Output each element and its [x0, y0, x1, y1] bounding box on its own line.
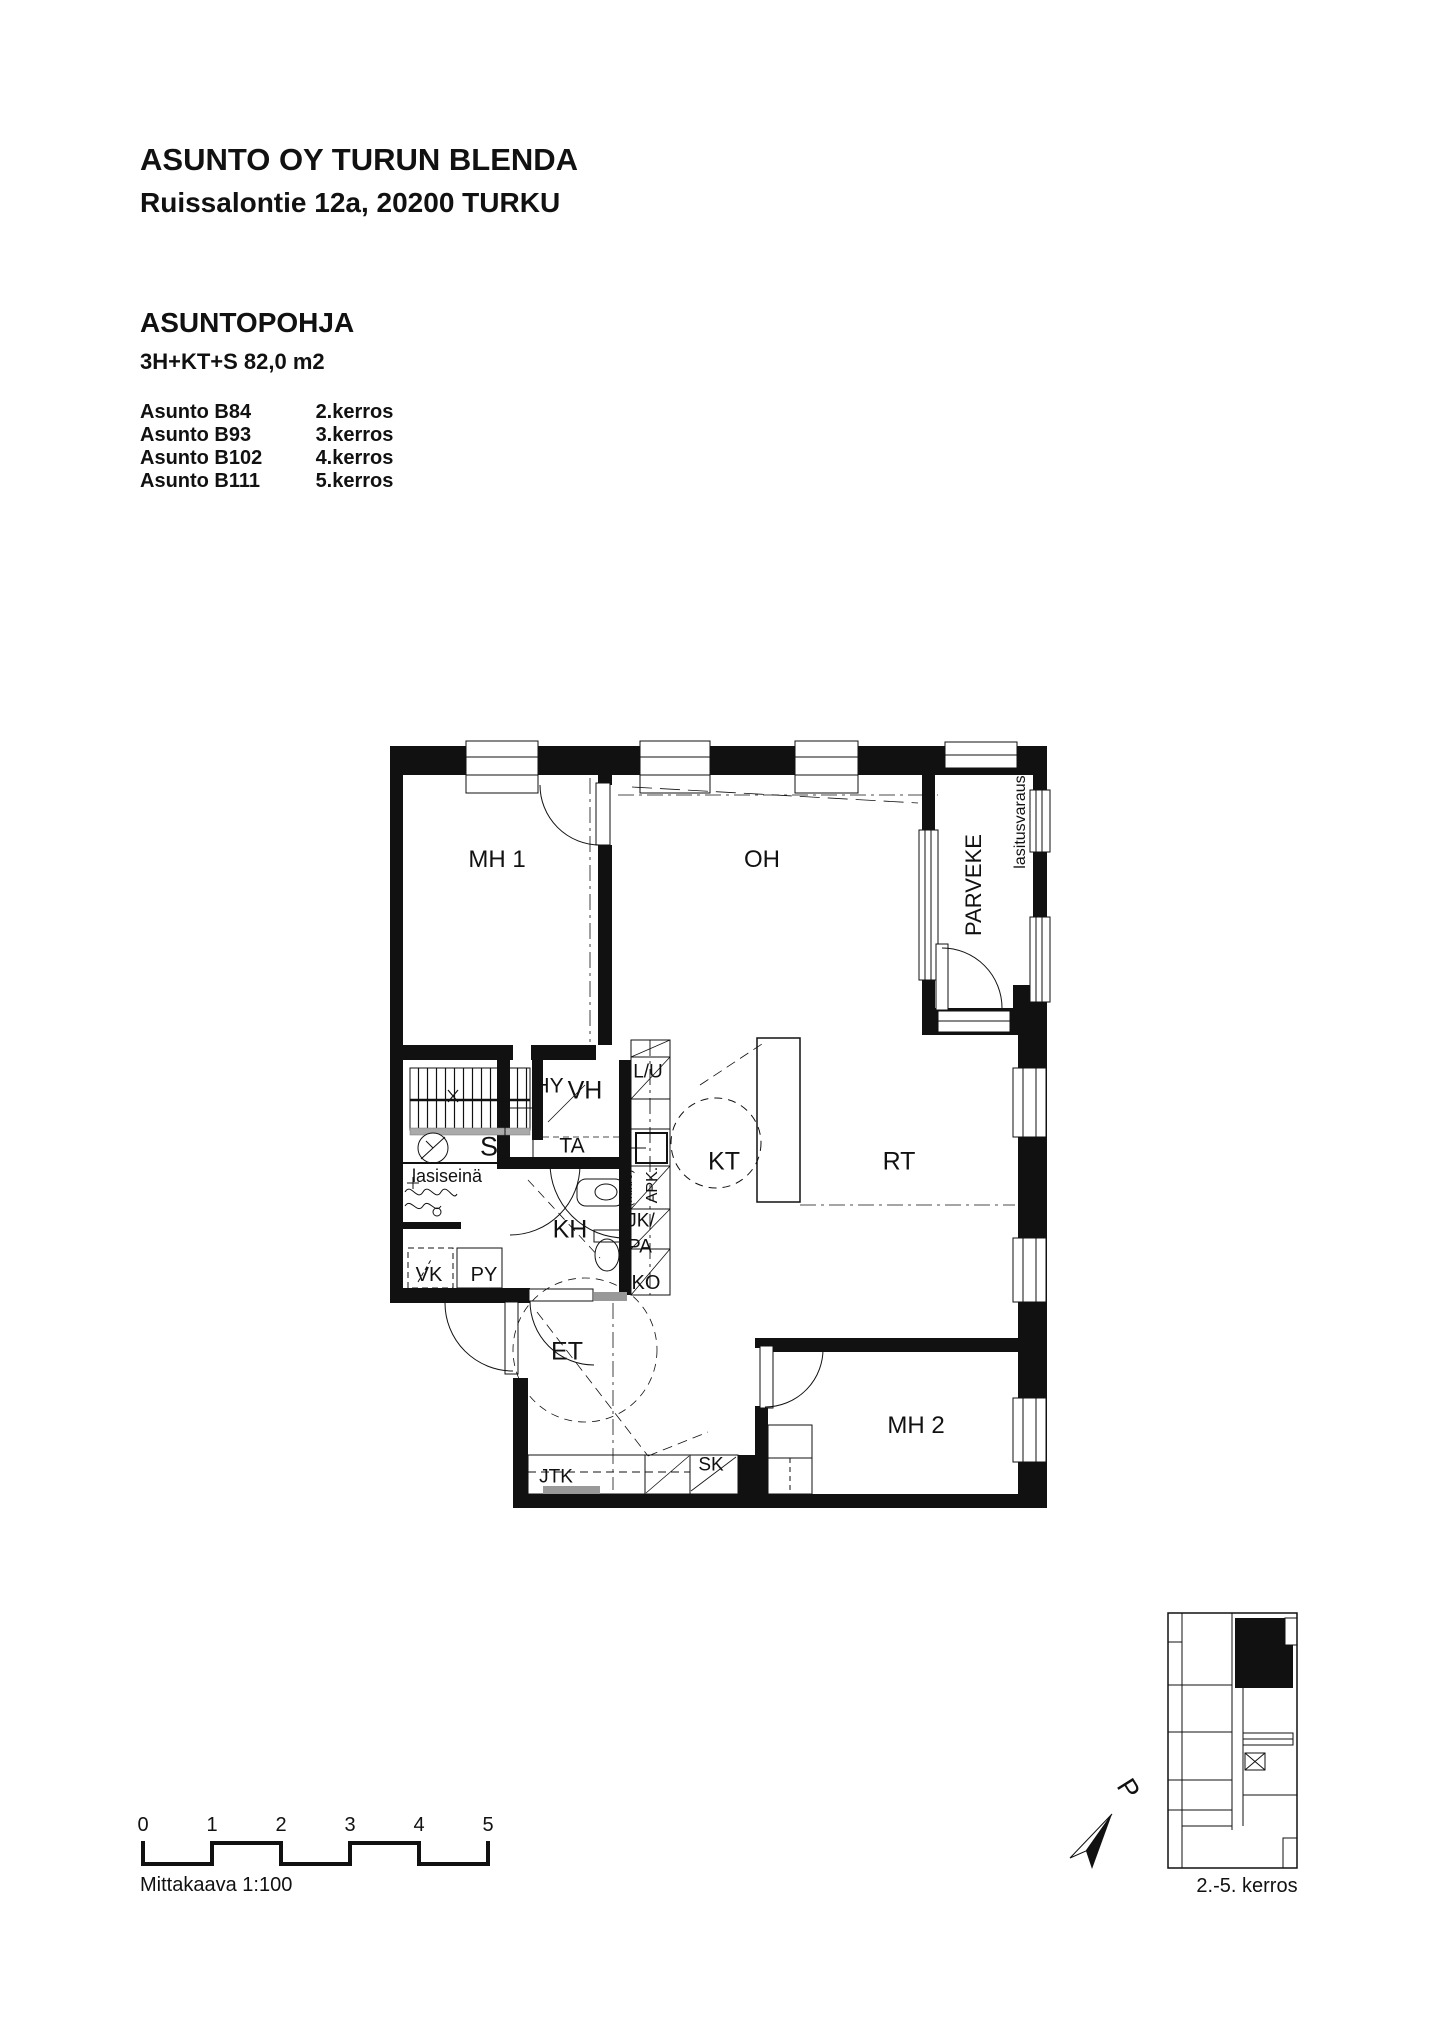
room-label-hy: HY [534, 1076, 563, 1097]
scale-tick-2: 2 [275, 1814, 286, 1837]
apartment-name: Asunto B84 [140, 401, 310, 424]
label-ta: TA [559, 1136, 584, 1157]
label-py: PY [471, 1265, 498, 1285]
room-label-mh2: MH 2 [887, 1414, 944, 1438]
room-label-mh1: MH 1 [468, 848, 525, 872]
north-arrow [1070, 1814, 1112, 1869]
scale-bar [143, 1841, 488, 1864]
room-label-et: ET [551, 1340, 583, 1365]
label-sk: SK [698, 1456, 723, 1475]
room-label-parveke: PARVEKE [963, 834, 985, 936]
scale-tick-0: 0 [137, 1814, 148, 1837]
apartment-floor: 4.kerros [316, 447, 394, 469]
room-label-kt: KT [708, 1150, 740, 1175]
apartment-row: Asunto B93 3.kerros [140, 424, 393, 447]
section-heading: ASUNTOPOHJA [140, 307, 354, 339]
apartment-name: Asunto B102 [140, 447, 310, 470]
label-vk: VK [416, 1265, 443, 1285]
scale-tick-5: 5 [482, 1814, 493, 1837]
label-jtk: JTK [539, 1468, 573, 1487]
apartment-floor: 2.kerros [316, 401, 394, 423]
apartment-name: Asunto B111 [140, 470, 310, 493]
keyplan-floors-label: 2.-5. kerros [1196, 1876, 1297, 1896]
scale-tick-4: 4 [413, 1814, 424, 1837]
scale-tick-1: 1 [206, 1814, 217, 1837]
label-apk: APK. [645, 1167, 661, 1203]
floorplan-document-page: ASUNTO OY TURUN BLENDA Ruissalontie 12a,… [0, 0, 1440, 2036]
apartment-type: 3H+KT+S 82,0 m2 [140, 349, 325, 375]
apartment-floor: 5.kerros [316, 470, 394, 492]
apartment-floor: 3.kerros [316, 424, 394, 446]
label-jk: JK/ [627, 1212, 654, 1231]
label-lu: L/U [633, 1063, 663, 1082]
key-plan [1168, 1613, 1297, 1868]
room-label-oh: OH [744, 848, 780, 872]
apartment-name: Asunto B93 [140, 424, 310, 447]
scale-tick-3: 3 [344, 1814, 355, 1837]
scale-caption: Mittakaava 1:100 [140, 1874, 292, 1897]
label-pa: PA [628, 1238, 652, 1257]
room-label-kh: KH [553, 1218, 588, 1243]
label-lasitusvaraus: lasitusvaraus [1013, 775, 1029, 868]
room-label-sauna: S [480, 1134, 498, 1161]
apartment-row: Asunto B102 4.kerros [140, 447, 393, 470]
document-address: Ruissalontie 12a, 20200 TURKU [140, 187, 560, 219]
room-label-vh: VH [568, 1079, 603, 1104]
document-title: ASUNTO OY TURUN BLENDA [140, 142, 578, 178]
floorplan-drawing [0, 0, 1440, 2036]
label-mikro: (mikro) [622, 1169, 634, 1206]
apartment-list: Asunto B84 2.kerros Asunto B93 3.kerros … [140, 401, 393, 493]
apartment-row: Asunto B84 2.kerros [140, 401, 393, 424]
label-ko: KO [632, 1273, 661, 1293]
label-lasiseina: lasiseinä [412, 1167, 482, 1185]
room-label-rt: RT [883, 1150, 916, 1175]
sauna-fixtures [403, 1068, 530, 1163]
apartment-row: Asunto B111 5.kerros [140, 470, 393, 493]
